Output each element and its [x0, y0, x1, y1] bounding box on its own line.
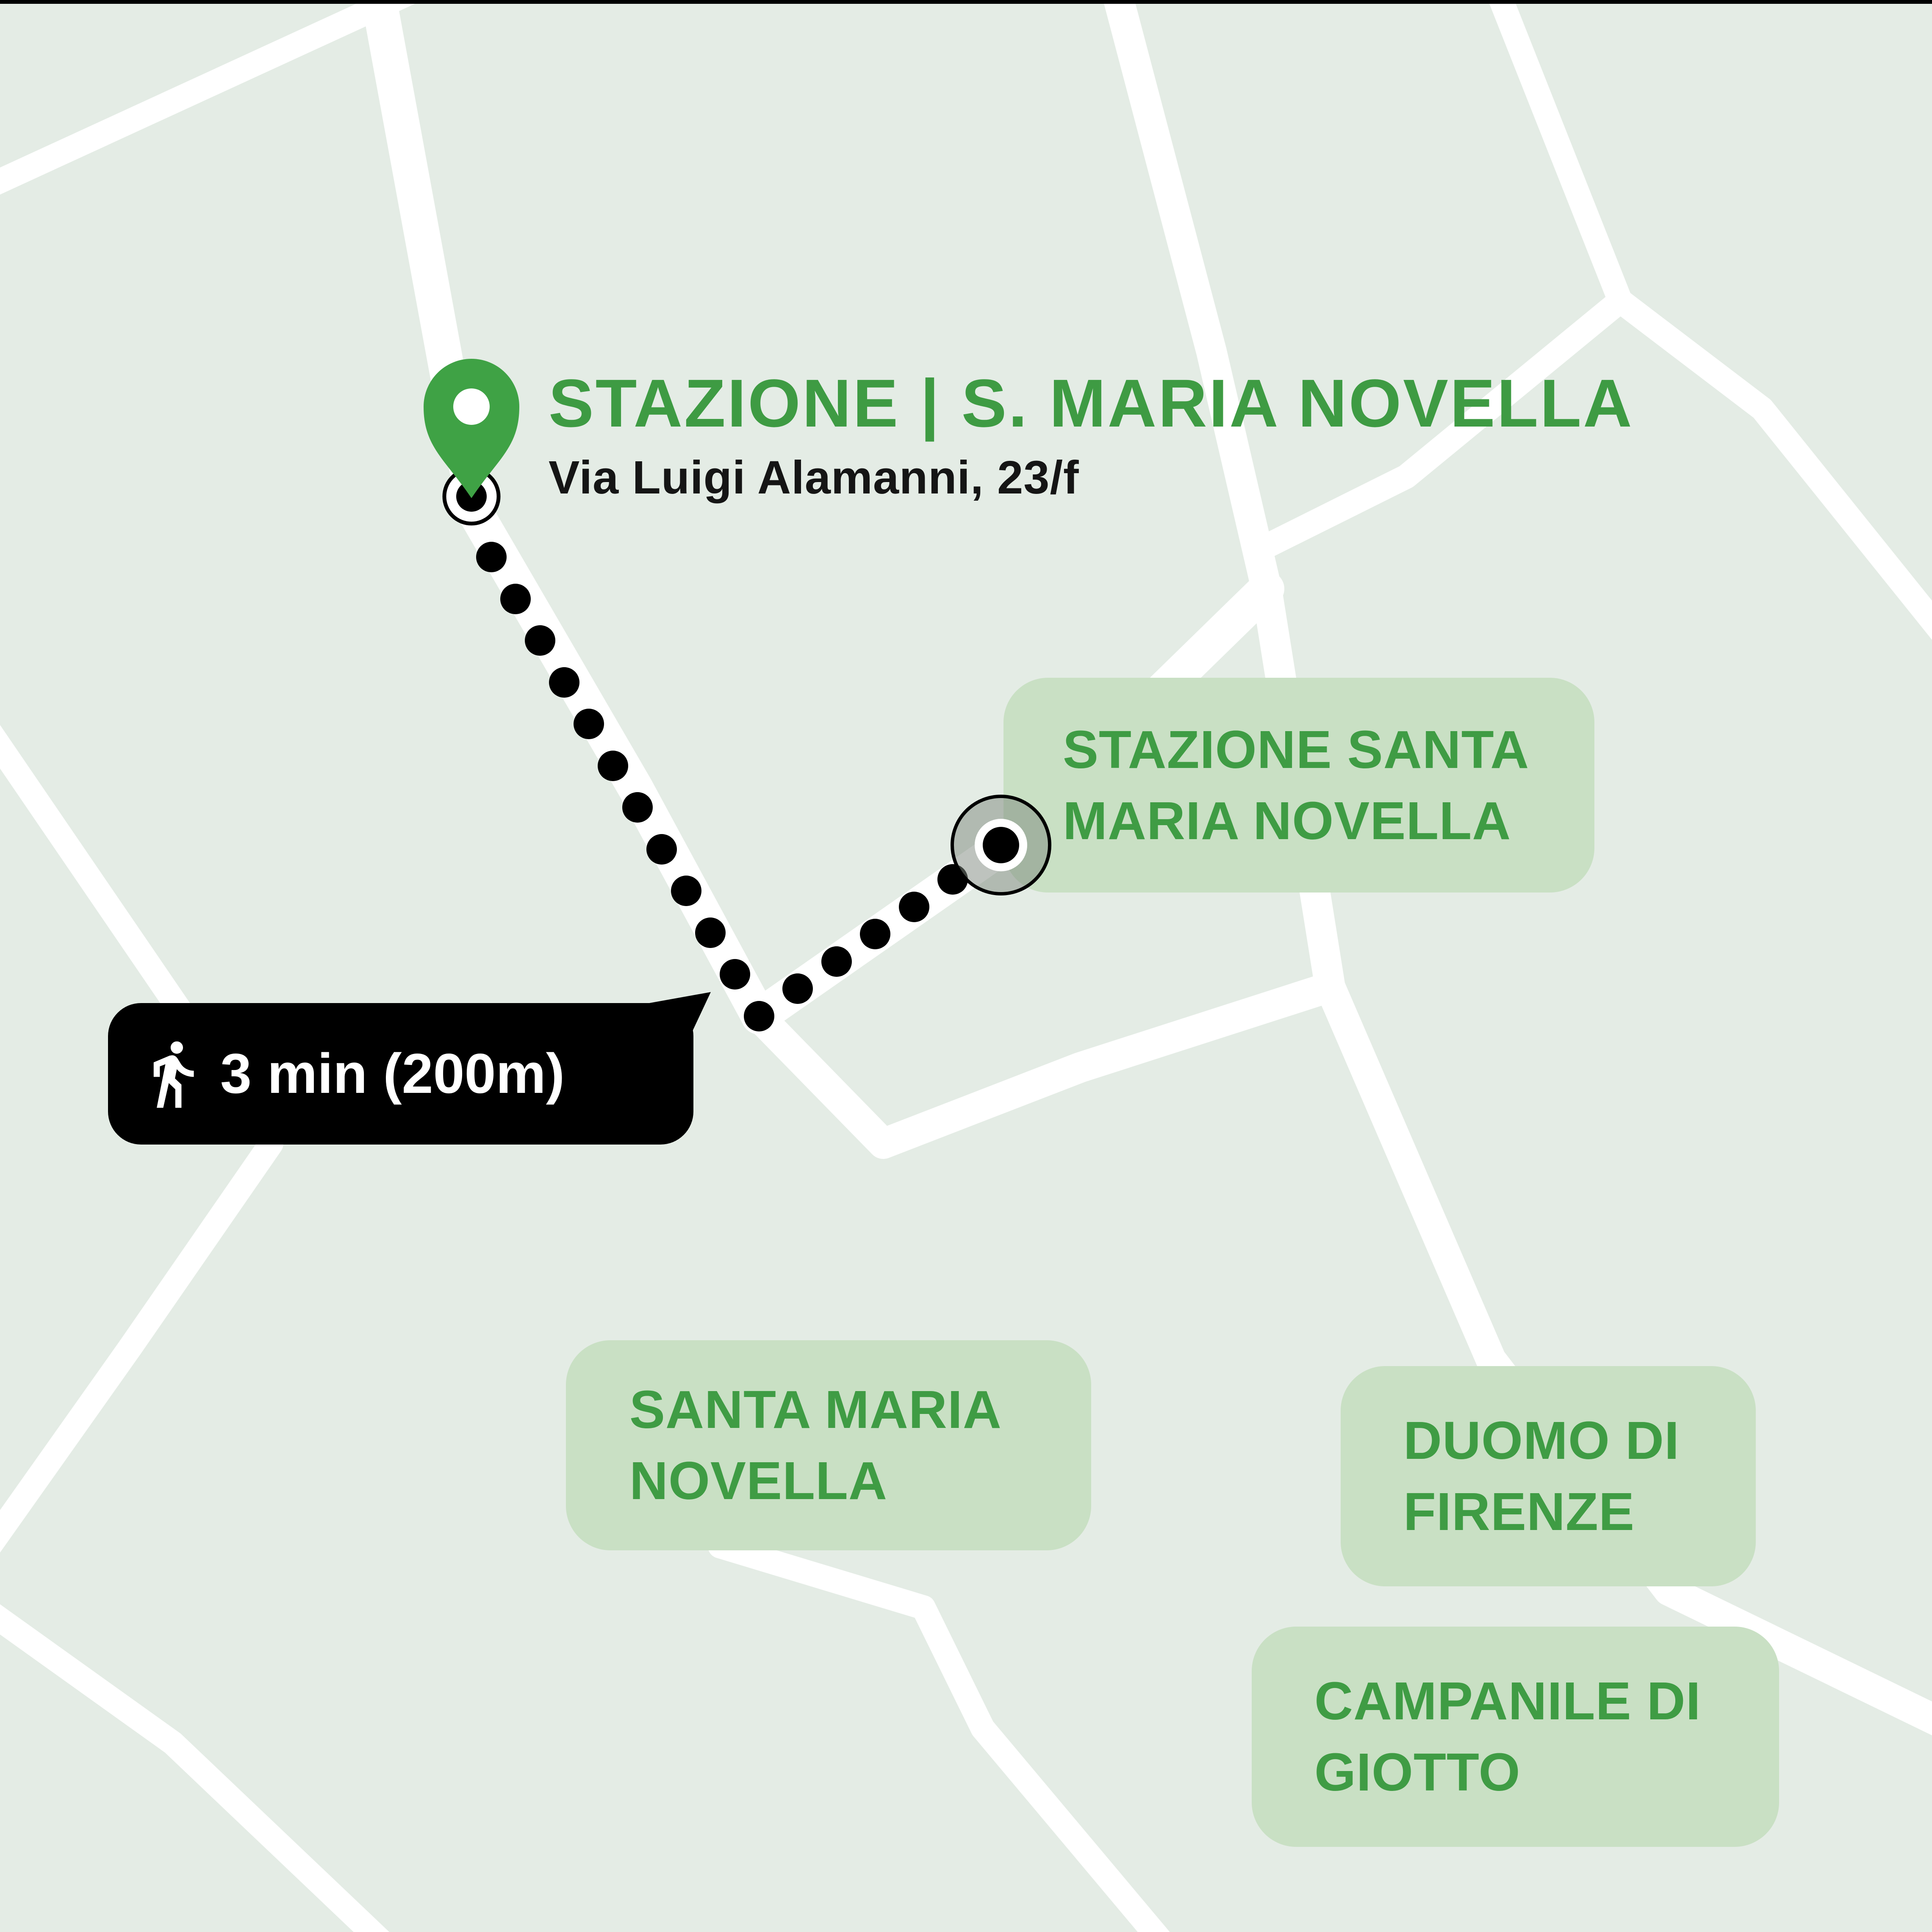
- route-dot: [476, 542, 507, 572]
- origin-pin-icon[interactable]: [424, 359, 519, 498]
- destination-title: STAZIONE | S. MARIA NOVELLA: [549, 368, 1634, 439]
- route-dot: [525, 625, 555, 656]
- route-dot: [695, 917, 726, 948]
- walking-person-icon: [135, 1029, 209, 1118]
- station-marker-core: [983, 827, 1019, 863]
- route-dot: [622, 792, 653, 823]
- route-dot: [671, 876, 701, 906]
- route-dot: [744, 1001, 774, 1031]
- route-dot: [549, 667, 579, 698]
- walk-time-badge: 3 min (200m): [108, 1003, 693, 1145]
- walk-time-text: 3 min (200m): [220, 1042, 565, 1106]
- route-overlay-layer: [0, 0, 1932, 1932]
- route-dot: [500, 584, 531, 614]
- top-border: [0, 0, 1932, 4]
- route-dot: [821, 946, 852, 977]
- route-dot: [598, 751, 628, 781]
- route-dot: [860, 919, 890, 949]
- route-dot: [574, 709, 604, 739]
- destination-address: Via Luigi Alamanni, 23/f: [549, 451, 1634, 504]
- destination-header: STAZIONE | S. MARIA NOVELLA Via Luigi Al…: [549, 368, 1634, 504]
- route-dot: [899, 892, 929, 922]
- route-dot: [782, 973, 813, 1004]
- route-dot: [646, 834, 677, 865]
- origin-pin-hole: [453, 388, 490, 425]
- map: STAZIONE SANTA MARIA NOVELLA SANTA MARIA…: [0, 0, 1932, 1932]
- route-dot: [720, 959, 750, 990]
